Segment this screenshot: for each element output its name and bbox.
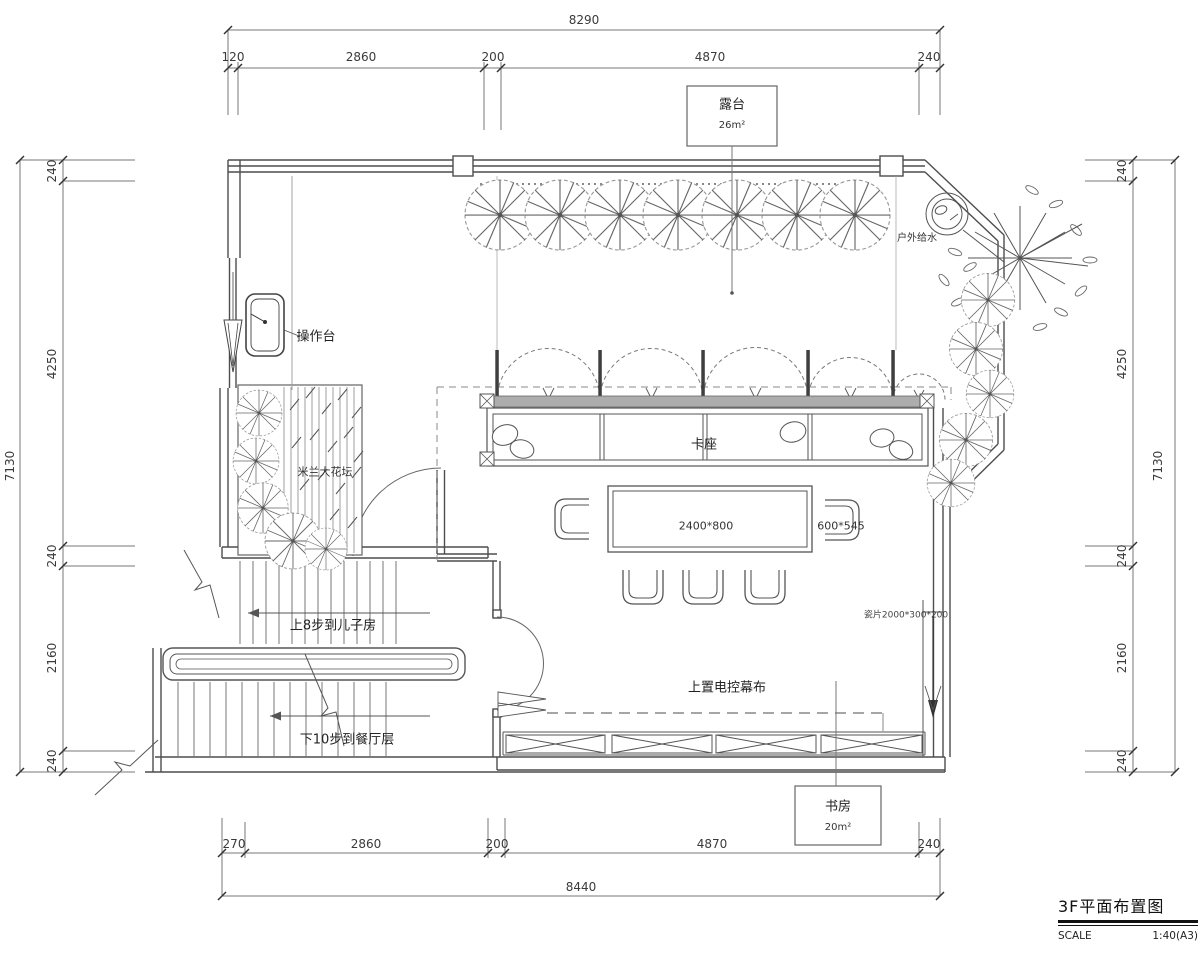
study-area: 20m² [825,823,851,833]
title-block: 3F平面布置图 SCALE 1:40(A3) [1058,893,1198,942]
floor-plan-canvas: 8290 120 2860 200 4870 240 270 2860 200 … [0,0,1200,954]
booth-seating [480,394,934,466]
break-line [184,550,219,618]
dim-bottom-seg-5: 240 [918,838,941,850]
casement-arcs [497,348,945,400]
entry-door-arc [353,468,441,556]
bookshelf-row [498,692,925,755]
dim-bottom-seg-2: 2860 [351,838,382,850]
title-rule-thin [1058,925,1198,926]
table-size-label: 2400*800 [679,521,734,532]
dim-bottom-seg-3: 200 [486,838,509,850]
operation-counter-label: 操作台 [296,331,335,344]
dim-left-seg-4: 2160 [46,643,58,674]
terrace-area: 26m² [719,121,745,131]
dim-bottom-seg-1: 270 [223,838,246,850]
dim-left-seg-3: 240 [46,545,58,568]
dining-set [555,486,859,604]
dim-top-seg-2: 2860 [346,51,377,63]
terrace-label-box [687,86,777,146]
dim-bottom-seg-4: 4870 [697,838,728,850]
dim-top-seg-4: 4870 [695,51,726,63]
stair-up-label: 上8步到儿子房 [290,620,376,633]
break-line [95,740,158,795]
tile-note-label: 瓷片2000*300*200 [864,612,948,621]
dim-left-seg-5: 240 [46,750,58,773]
planter-label: 米兰大花坛 [298,467,353,478]
mullions [495,350,895,402]
chair-size-label: 600*545 [817,521,865,532]
scale-label: SCALE [1058,930,1092,942]
dim-right-overall: 7130 [1152,451,1164,482]
study-label-box [795,786,881,845]
dim-left-seg-1: 240 [46,160,58,183]
stair-down-label: 下10步到餐厅层 [300,734,395,747]
dim-right-seg-5: 240 [1116,750,1128,773]
drawing-title: 3F平面布置图 [1058,893,1198,917]
dim-right-seg-1: 240 [1116,160,1128,183]
dim-right-seg-2: 4250 [1116,349,1128,380]
title-rule [1058,920,1198,923]
folding-door-icon [498,692,546,717]
dim-top-seg-5: 240 [918,51,941,63]
dim-right-seg-3: 240 [1116,545,1128,568]
booth-label: 卡座 [691,439,717,452]
dim-top-seg-1: 120 [222,51,245,63]
dim-left-seg-2: 4250 [46,349,58,380]
dim-top-overall: 8290 [569,14,600,26]
dim-bottom-overall: 8440 [566,881,597,893]
scale-value: 1:40(A3) [1152,930,1198,942]
stairs [95,550,465,795]
outdoor-water-label: 户外给水 [897,234,937,244]
terrace-name: 露台 [719,99,745,112]
dim-right-seg-4: 2160 [1116,643,1128,674]
dim-left-overall: 7130 [4,451,16,482]
outdoor-water-basin [926,193,1004,262]
operation-counter [224,176,299,390]
screen-label: 上置电控幕布 [688,682,766,695]
dim-top-seg-3: 200 [482,51,505,63]
floor-plan-drawing [0,0,1200,954]
study-name: 书房 [825,801,851,814]
